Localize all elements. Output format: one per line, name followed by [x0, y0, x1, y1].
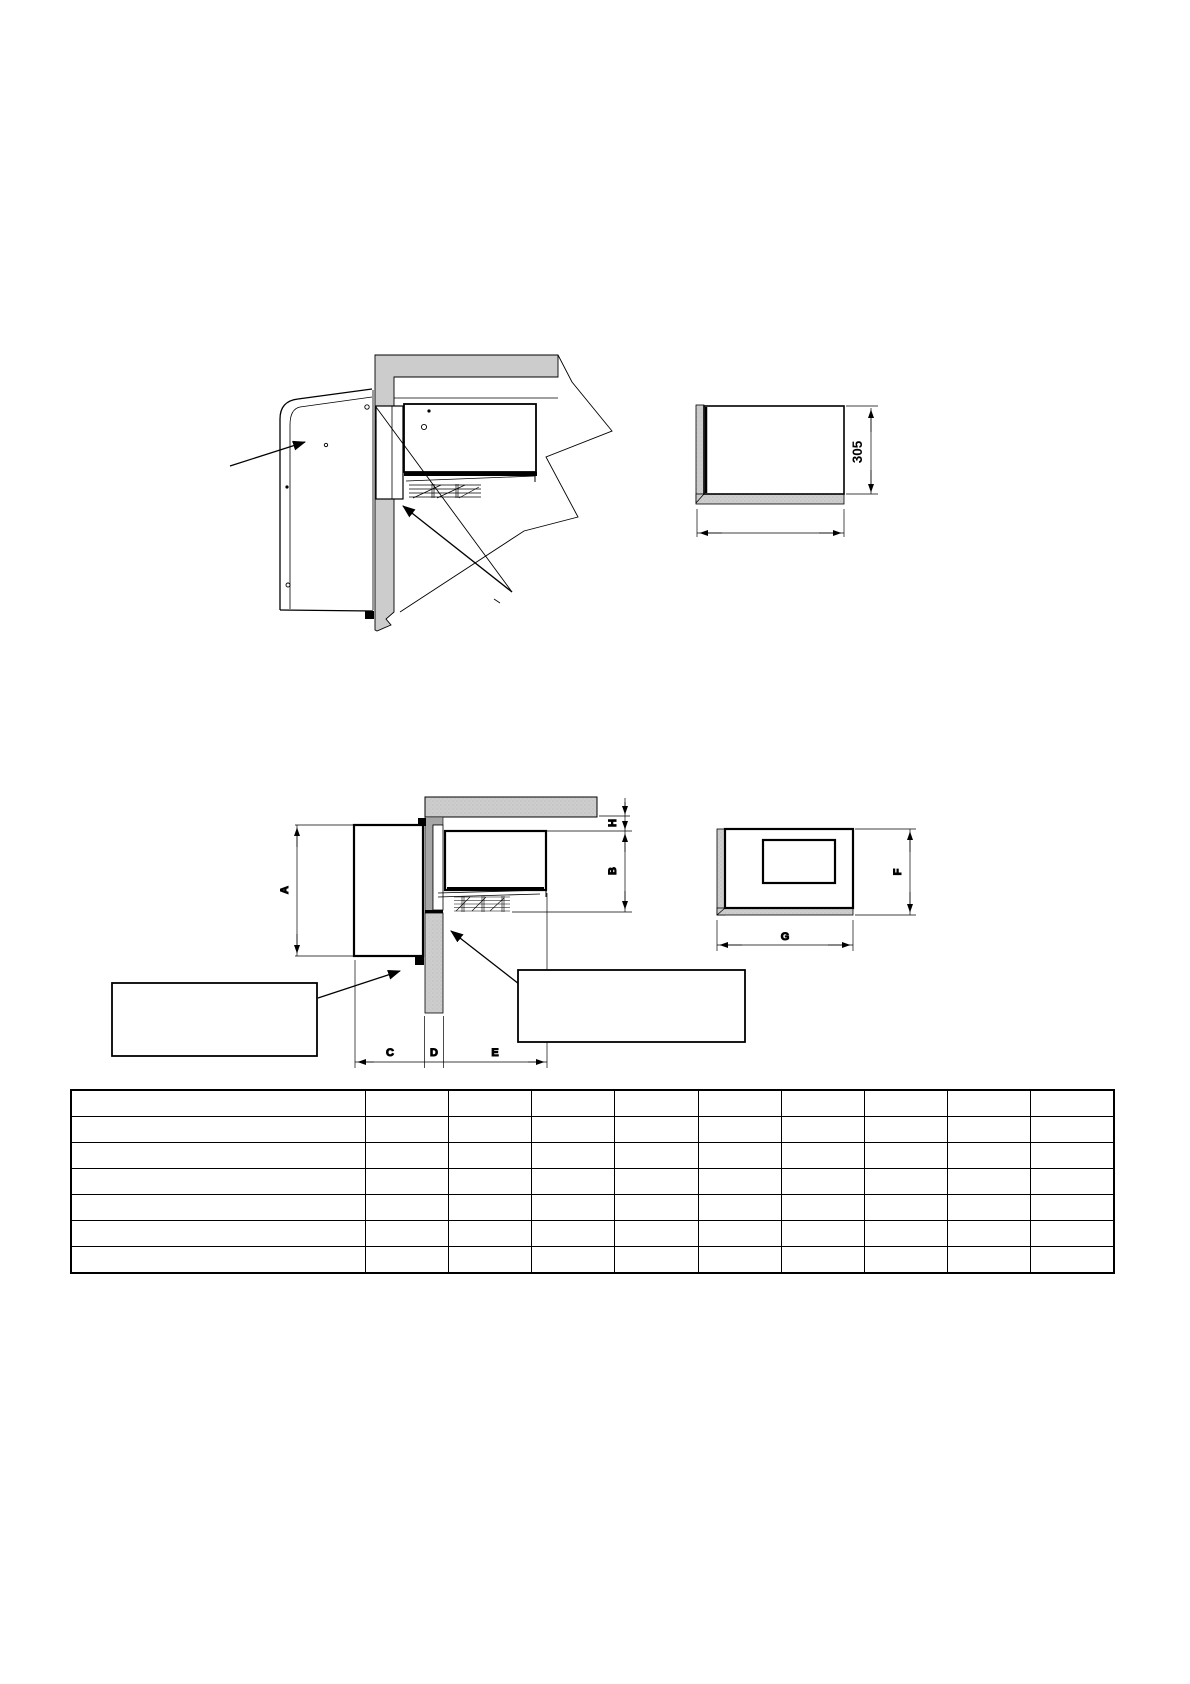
value-cell — [781, 1195, 864, 1221]
page: 305 — [0, 0, 1190, 1684]
value-cell — [449, 1090, 532, 1117]
value-cell — [698, 1090, 781, 1117]
callout-left-arrow — [318, 971, 400, 998]
value-cell — [532, 1143, 615, 1169]
value-cell — [948, 1090, 1031, 1117]
dim-A — [295, 825, 357, 956]
dim-E-label: E — [491, 1047, 498, 1059]
cover-foot — [415, 956, 424, 965]
value-cell — [1031, 1221, 1114, 1247]
value-cell — [615, 1117, 698, 1143]
value-cell — [615, 1090, 698, 1117]
value-cell — [1031, 1195, 1114, 1221]
unit-body — [404, 404, 536, 472]
value-cell — [948, 1117, 1031, 1143]
value-cell — [948, 1247, 1031, 1274]
value-cell — [948, 1195, 1031, 1221]
dimension-view-diagram: H B A C D E — [112, 797, 745, 1068]
value-cell — [615, 1143, 698, 1169]
value-cell — [532, 1090, 615, 1117]
value-cell — [366, 1117, 449, 1143]
coil-fins — [409, 484, 481, 498]
front-view-diagram: F G — [717, 829, 916, 951]
value-cell — [948, 1169, 1031, 1195]
rear-view-diagram: 305 — [696, 405, 878, 537]
row-label-cell — [71, 1247, 366, 1274]
bevel-left — [717, 829, 725, 915]
bevel-left — [696, 405, 704, 503]
value-cell — [864, 1090, 947, 1117]
value-cell — [366, 1169, 449, 1195]
dim-F — [855, 829, 916, 915]
value-cell — [615, 1221, 698, 1247]
value-cell — [698, 1169, 781, 1195]
row-label-cell — [71, 1195, 366, 1221]
row-label-cell — [71, 1143, 366, 1169]
value-cell — [781, 1090, 864, 1117]
value-cell — [449, 1143, 532, 1169]
table-row — [71, 1143, 1114, 1169]
wall-cap-bar — [425, 910, 443, 913]
dim-G-label: G — [781, 931, 790, 943]
value-cell — [366, 1143, 449, 1169]
small-tick — [494, 599, 500, 603]
technical-drawing: 305 — [0, 0, 1190, 1684]
value-cell — [1031, 1117, 1114, 1143]
value-cell — [449, 1221, 532, 1247]
cover-arrow — [230, 442, 305, 466]
value-cell — [449, 1247, 532, 1274]
value-cell — [532, 1195, 615, 1221]
wall-sleeve — [376, 406, 403, 499]
cover-panel — [280, 389, 374, 619]
value-cell — [864, 1195, 947, 1221]
value-cell — [781, 1117, 864, 1143]
value-cell — [698, 1143, 781, 1169]
spec-table-body — [71, 1090, 1114, 1273]
cover-top-bracket — [418, 818, 426, 826]
row-label-cell — [71, 1169, 366, 1195]
dim-H-label: H — [607, 819, 619, 827]
bevel-bottom — [696, 494, 844, 504]
value-cell — [532, 1117, 615, 1143]
value-cell — [615, 1169, 698, 1195]
value-cell — [698, 1195, 781, 1221]
table-row — [71, 1117, 1114, 1143]
value-cell — [864, 1117, 947, 1143]
value-cell — [781, 1169, 864, 1195]
value-cell — [366, 1195, 449, 1221]
value-cell — [781, 1143, 864, 1169]
value-cell — [698, 1221, 781, 1247]
value-cell — [864, 1169, 947, 1195]
coil-fins — [454, 896, 510, 912]
drip-tray-edge2 — [438, 894, 540, 897]
value-cell — [532, 1221, 615, 1247]
callout-right-arrow — [451, 931, 519, 984]
row-label-cell — [71, 1117, 366, 1143]
value-cell — [698, 1247, 781, 1274]
dim-305-label: 305 — [850, 440, 865, 463]
side-view-diagram — [230, 355, 612, 631]
cover-panel — [354, 825, 423, 956]
value-cell — [1031, 1169, 1114, 1195]
value-cell — [948, 1143, 1031, 1169]
table-row — [71, 1090, 1114, 1117]
callout-box-left — [112, 983, 317, 1056]
callout-box-right — [518, 970, 745, 1042]
row-label-cell — [71, 1090, 366, 1117]
wall-lower — [425, 913, 443, 1013]
dim-D-label: D — [430, 1047, 438, 1059]
dim-A-label: A — [279, 886, 291, 894]
table-row — [71, 1221, 1114, 1247]
value-cell — [1031, 1247, 1114, 1274]
unit-bottom-bar — [447, 887, 544, 891]
row-label-cell — [71, 1221, 366, 1247]
value-cell — [615, 1247, 698, 1274]
value-cell — [864, 1247, 947, 1274]
value-cell — [366, 1221, 449, 1247]
unit-screw-hole — [421, 424, 426, 429]
value-cell — [449, 1117, 532, 1143]
drip-tray-edge — [406, 476, 535, 481]
wall-opening — [763, 840, 835, 883]
dim-C-label: C — [386, 1047, 394, 1059]
spec-table — [70, 1089, 1115, 1274]
spec-table-container — [70, 1089, 1115, 1264]
value-cell — [1031, 1143, 1114, 1169]
value-cell — [449, 1195, 532, 1221]
value-cell — [1031, 1090, 1114, 1117]
value-cell — [781, 1221, 864, 1247]
value-cell — [449, 1169, 532, 1195]
value-cell — [366, 1247, 449, 1274]
value-cell — [366, 1090, 449, 1117]
table-row — [71, 1195, 1114, 1221]
dim-F-label: F — [892, 868, 904, 875]
value-cell — [698, 1117, 781, 1143]
unit-body — [445, 831, 546, 890]
value-cell — [948, 1221, 1031, 1247]
table-row — [71, 1247, 1114, 1274]
value-cell — [864, 1221, 947, 1247]
value-cell — [532, 1169, 615, 1195]
dim-B-label: B — [607, 867, 619, 875]
value-cell — [781, 1247, 864, 1274]
ceiling — [425, 797, 597, 817]
value-cell — [532, 1247, 615, 1274]
value-cell — [615, 1195, 698, 1221]
unit-screw-dot — [427, 409, 430, 412]
value-cell — [864, 1143, 947, 1169]
rear-panel-face — [704, 406, 844, 494]
table-row — [71, 1169, 1114, 1195]
dim-width — [697, 509, 844, 537]
